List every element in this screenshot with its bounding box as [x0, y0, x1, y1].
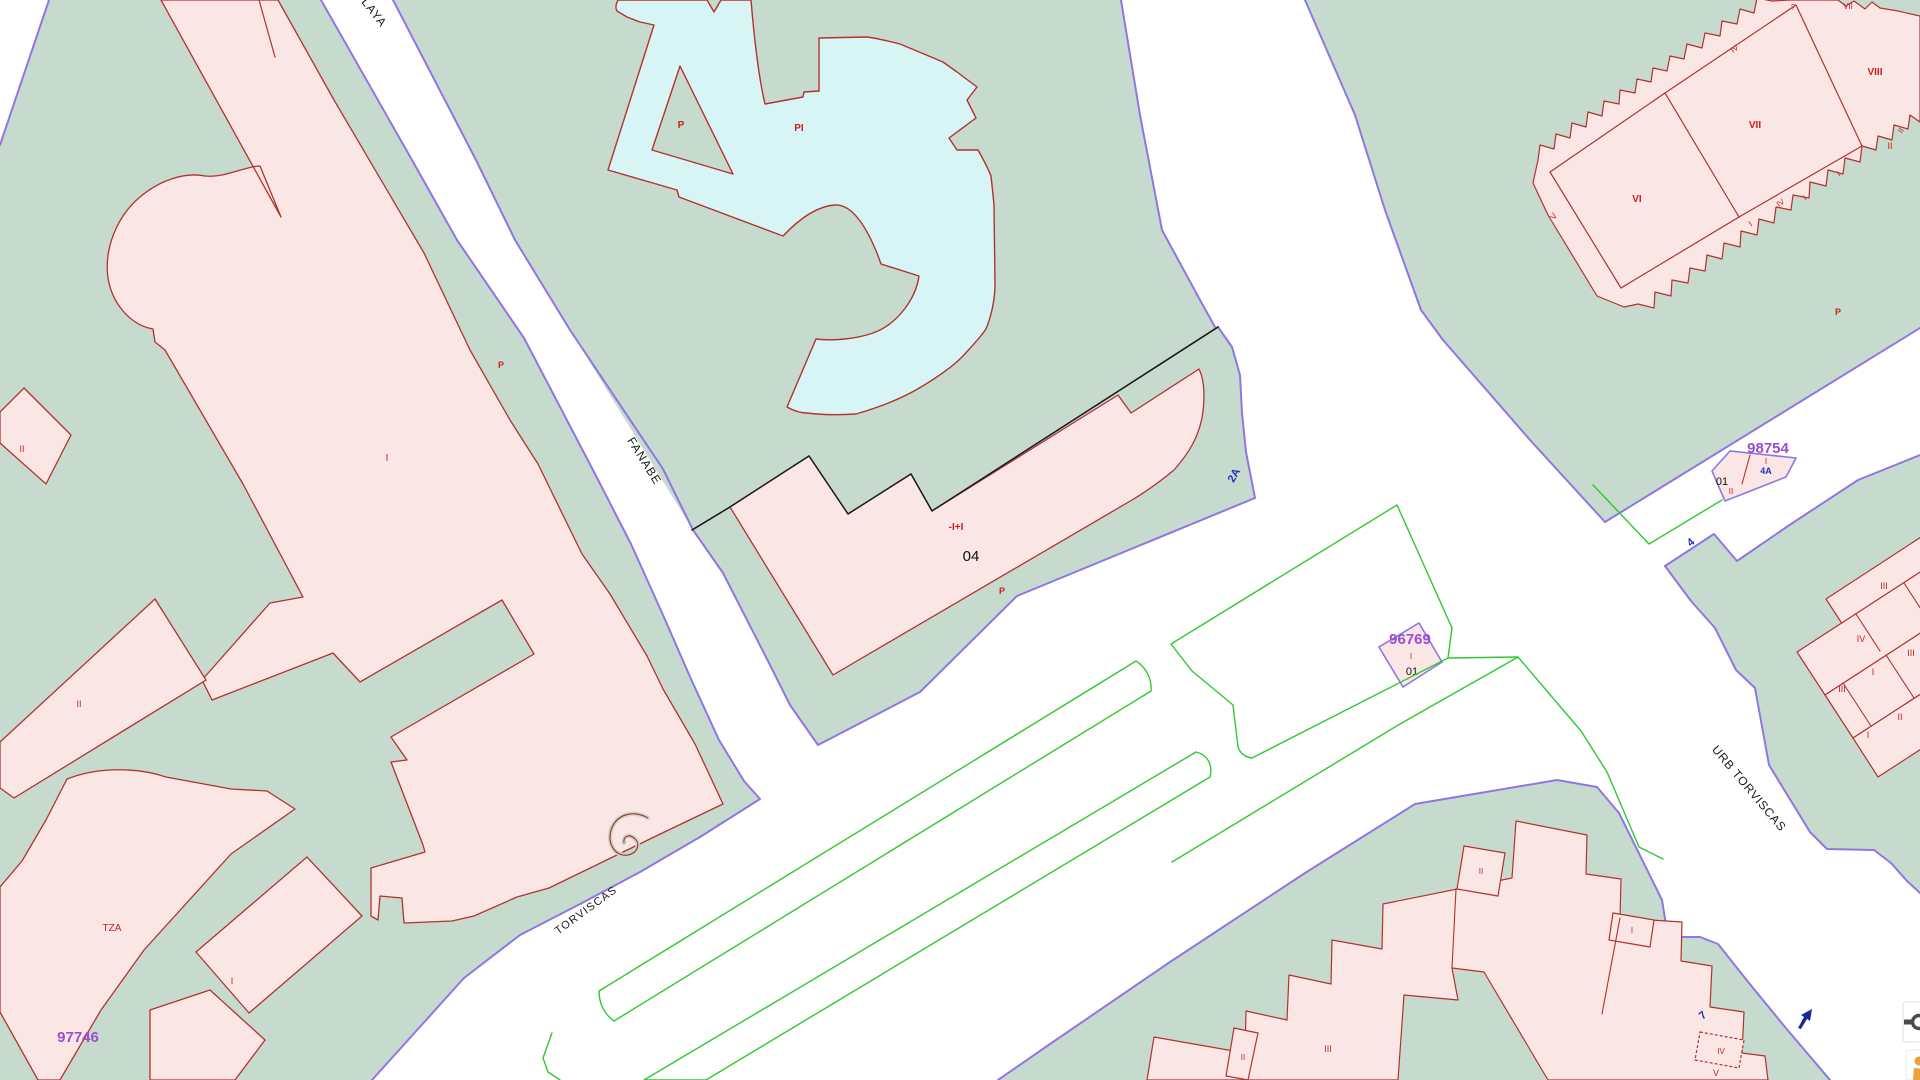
- svg-text:III: III: [1907, 648, 1915, 658]
- svg-text:I: I: [1765, 457, 1767, 466]
- svg-text:II: II: [1887, 141, 1892, 151]
- svg-text:97746: 97746: [57, 1029, 99, 1046]
- svg-text:II: II: [19, 444, 24, 454]
- svg-text:?: ?: [1791, 3, 1796, 12]
- svg-text:I: I: [1631, 926, 1633, 935]
- svg-text:II: II: [1479, 867, 1483, 876]
- svg-text:01: 01: [1716, 476, 1728, 488]
- svg-text:I: I: [1867, 730, 1870, 740]
- svg-text:P: P: [678, 120, 685, 131]
- svg-text:VII: VII: [1749, 120, 1761, 131]
- svg-text:I: I: [1872, 667, 1875, 677]
- svg-text:II: II: [1897, 712, 1902, 722]
- svg-text:II: II: [1729, 487, 1733, 496]
- svg-text:IV: IV: [1717, 1047, 1725, 1056]
- svg-text:III: III: [1880, 581, 1888, 591]
- svg-text:4A: 4A: [1760, 466, 1772, 476]
- svg-text:II: II: [1241, 1053, 1245, 1062]
- svg-text:VI: VI: [1632, 194, 1642, 205]
- svg-text:96769: 96769: [1389, 631, 1431, 648]
- svg-text:98754: 98754: [1747, 440, 1789, 457]
- svg-text:P: P: [999, 586, 1005, 596]
- svg-text:IV: IV: [1857, 634, 1866, 644]
- svg-text:III: III: [1838, 684, 1846, 694]
- svg-text:-I+I: -I+I: [949, 522, 964, 533]
- svg-text:PI: PI: [794, 123, 804, 134]
- svg-text:TZA: TZA: [103, 923, 122, 934]
- svg-text:VIII: VIII: [1867, 67, 1882, 78]
- svg-text:P: P: [1835, 307, 1841, 317]
- svg-text:I: I: [386, 453, 389, 464]
- svg-text:II: II: [76, 699, 81, 709]
- svg-text:VII: VII: [1843, 2, 1853, 11]
- svg-text:04: 04: [963, 548, 980, 565]
- svg-text:P: P: [498, 360, 504, 370]
- svg-text:V: V: [1713, 1068, 1719, 1078]
- svg-text:III: III: [1324, 1044, 1332, 1054]
- svg-text:I: I: [231, 976, 234, 986]
- svg-text:I: I: [1410, 652, 1412, 661]
